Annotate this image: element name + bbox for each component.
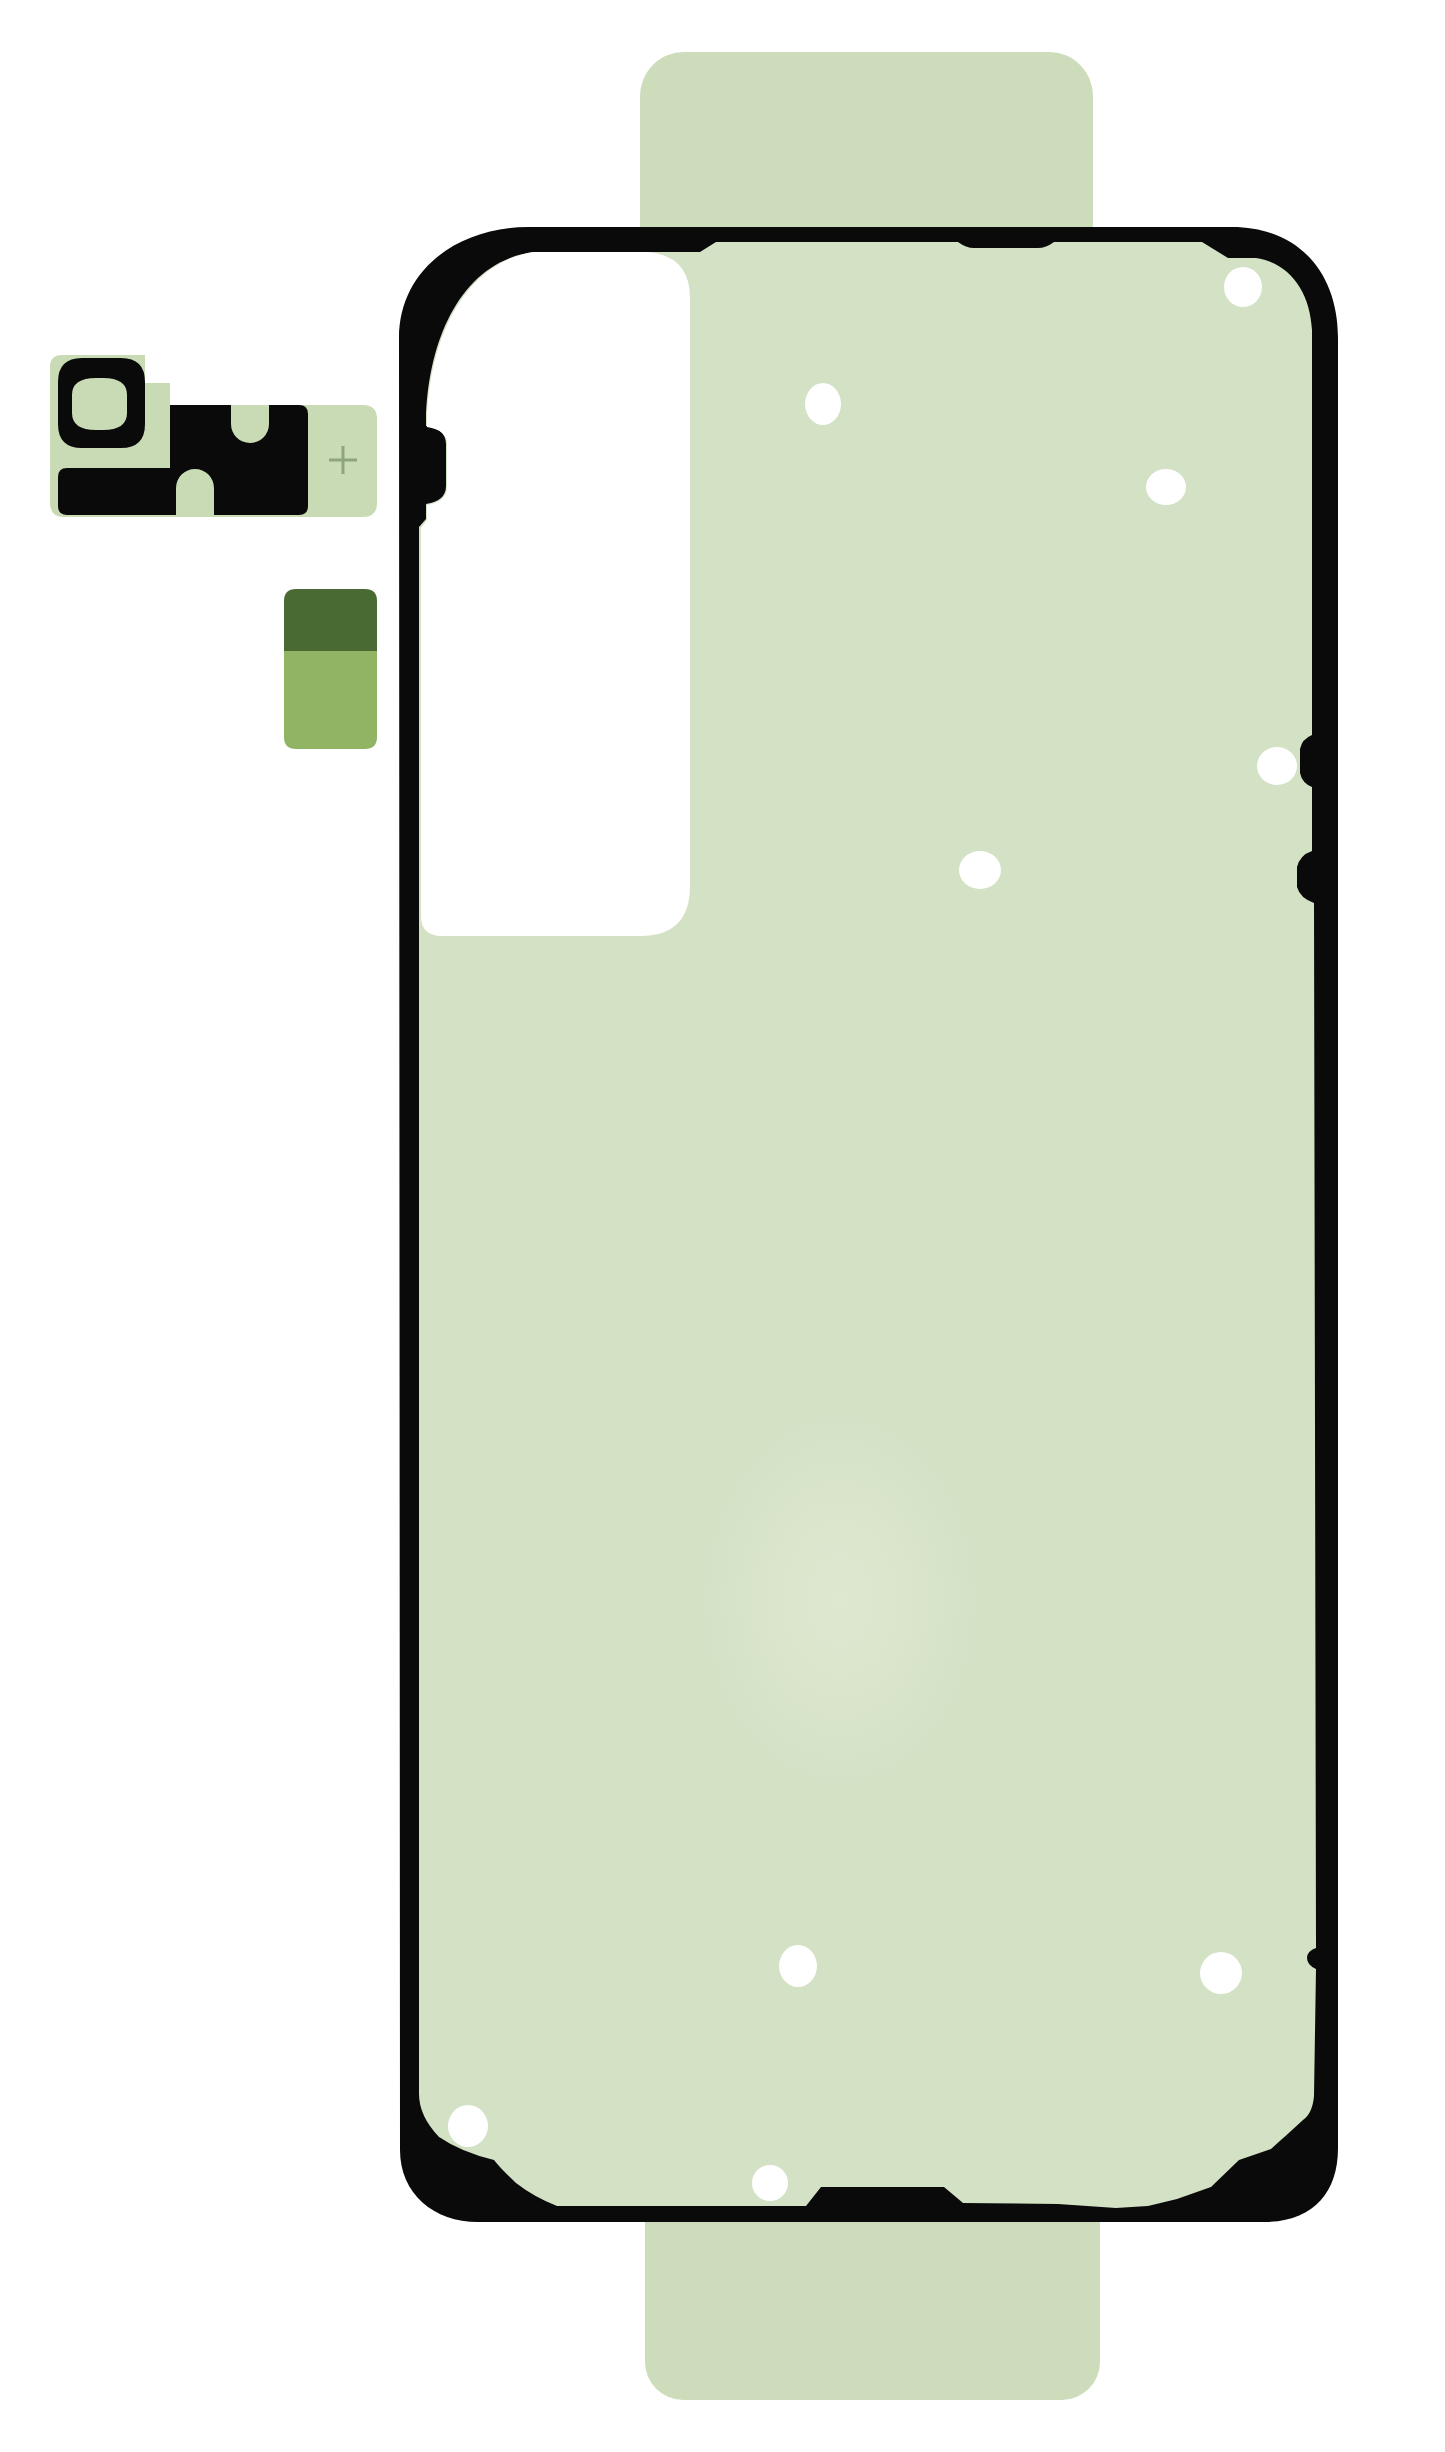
product-photo: [0, 0, 1445, 2452]
screw-hole-dot: [779, 1945, 817, 1987]
liner-sheen-watermark: [700, 1410, 980, 1790]
screw-hole-dot: [1257, 747, 1297, 785]
screw-hole-dot: [1146, 469, 1186, 505]
screw-hole-dot: [805, 383, 841, 425]
screw-hole-dot: [959, 851, 1001, 889]
pull-tab-sticker: [284, 589, 377, 749]
camera-region-cutout: [421, 252, 690, 936]
screw-hole-dot: [1200, 1952, 1242, 1994]
screw-hole-dot: [448, 2105, 488, 2147]
screw-hole-dot: [752, 2165, 788, 2201]
pull-tab-dark-half: [284, 589, 377, 651]
pull-tab-light-half: [284, 651, 377, 749]
main-adhesive-sheet: [399, 227, 1338, 2222]
screw-hole-dot: [1224, 267, 1262, 307]
